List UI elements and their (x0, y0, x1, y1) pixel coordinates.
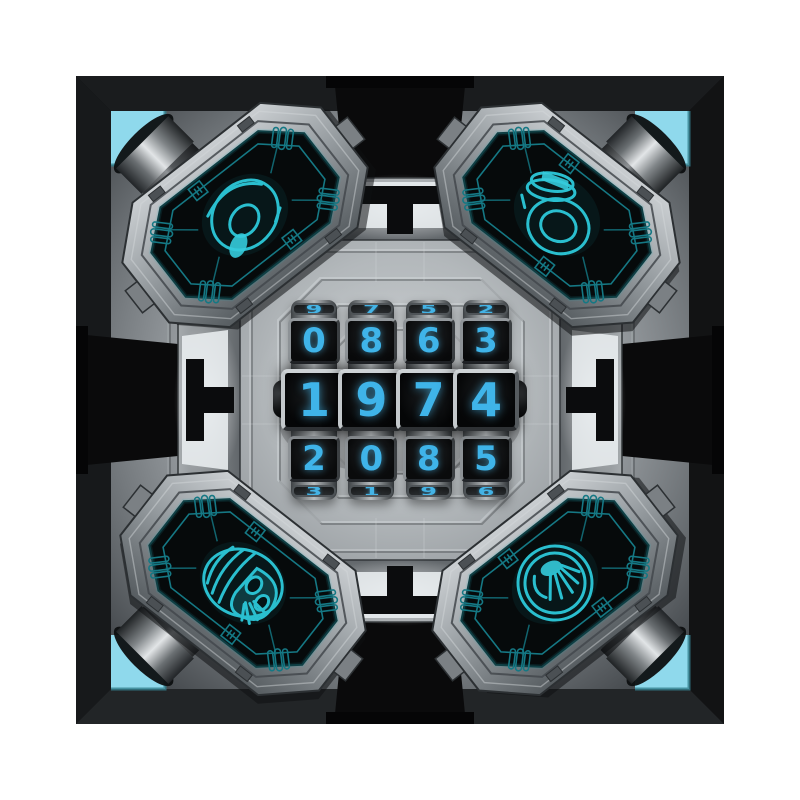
dial-2-digit-selected[interactable]: 9 (338, 369, 404, 431)
dial-1-digit-above: 9 (292, 303, 336, 315)
dial-3-digit-selected[interactable]: 7 (396, 369, 462, 431)
dial-1-digit-top[interactable]: 0 (288, 318, 340, 364)
dial-2-digit-bottom[interactable]: 0 (345, 436, 397, 482)
dial-4-digit-below: 6 (464, 485, 508, 497)
dial-4-digit-selected[interactable]: 4 (453, 369, 519, 431)
dial-1-digit-selected[interactable]: 1 (281, 369, 347, 431)
dial-1-digit-bottom[interactable]: 2 (288, 436, 340, 482)
dial-3-digit-bottom[interactable]: 8 (403, 436, 455, 482)
dial-2-digit-top[interactable]: 8 (345, 318, 397, 364)
dial-3-digit-top[interactable]: 6 (403, 318, 455, 364)
dial-3-digit-above: 5 (407, 303, 451, 315)
dial-4-digit-top[interactable]: 3 (460, 318, 512, 364)
dial-4-digit-bottom[interactable]: 5 (460, 436, 512, 482)
dial-4-digit-above: 2 (464, 303, 508, 315)
dial-3[interactable]: 5 6 7 8 9 (406, 300, 452, 500)
dial-3-digit-below: 9 (407, 485, 451, 497)
dial-1-digit-below: 3 (292, 485, 336, 497)
dial-2[interactable]: 7 8 9 0 1 (348, 300, 394, 500)
dial-2-digit-above: 7 (349, 303, 393, 315)
combination-lock[interactable]: 9 0 1 2 3 7 8 9 0 1 5 6 7 8 9 2 3 4 5 6 (291, 300, 509, 500)
dial-4[interactable]: 2 3 4 5 6 (463, 300, 509, 500)
vault-scene: 9 0 1 2 3 7 8 9 0 1 5 6 7 8 9 2 3 4 5 6 (76, 76, 724, 724)
dial-2-digit-below: 1 (349, 485, 393, 497)
product-image-canvas: 9 0 1 2 3 7 8 9 0 1 5 6 7 8 9 2 3 4 5 6 (0, 0, 800, 800)
dial-1[interactable]: 9 0 1 2 3 (291, 300, 337, 500)
